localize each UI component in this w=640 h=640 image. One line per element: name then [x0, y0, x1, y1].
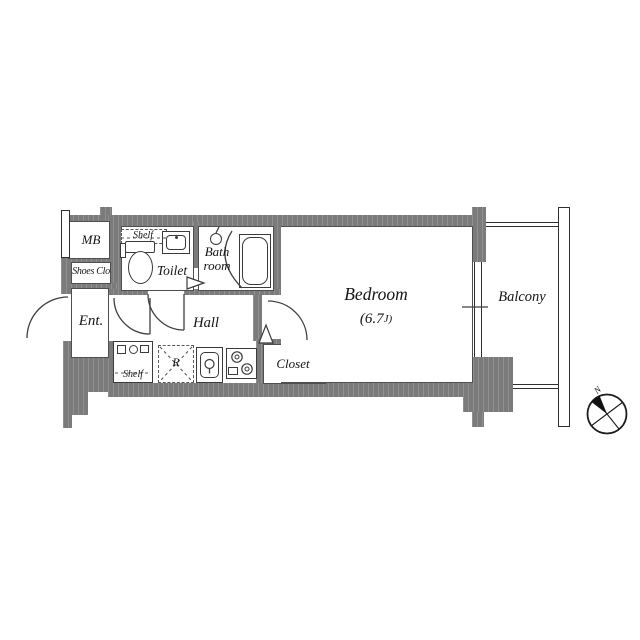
wall-hall-bedroom	[253, 295, 262, 341]
balcony-sliding-door	[474, 262, 482, 357]
balcony-railing-right	[558, 207, 570, 427]
bedroom-area-unit: J)	[384, 314, 393, 326]
entrance-door-arc	[27, 297, 68, 338]
wall-below-entrance-1	[63, 357, 113, 392]
label-bath-room: room	[196, 259, 238, 273]
label-bedroom-area: (6.7J)	[335, 311, 417, 329]
label-balcony: Balcony	[488, 289, 556, 306]
compass: N	[583, 378, 635, 436]
toilet-washbasin-drain	[175, 236, 178, 239]
stove-grill	[228, 367, 238, 375]
wall-top-pillar-right	[472, 207, 486, 262]
label-mb: MB	[66, 232, 116, 248]
label-toilet: Toilet	[150, 263, 194, 279]
label-shoes-clo: Shoes Clo	[69, 265, 113, 279]
label-bedroom: Bedroom	[330, 284, 422, 304]
wall-below-entrance-2	[63, 392, 88, 415]
label-entrance: Ent.	[68, 313, 114, 331]
hall-door-arc	[114, 298, 150, 334]
bedroom-area-main: (6.7	[360, 312, 384, 328]
balcony-edge-top	[486, 222, 560, 227]
label-closet: Closet	[262, 356, 324, 372]
label-shelf-laundry: Shelf	[113, 369, 153, 382]
label-shelf-toilet: Shelf	[123, 229, 163, 243]
balcony-edge-bottom	[513, 384, 558, 389]
laundry-tap-right	[140, 345, 149, 353]
wall-se-block-tab	[472, 412, 484, 427]
wall-bottom	[108, 383, 463, 397]
wall-below-entrance-3	[63, 415, 72, 428]
bathtub-inner	[242, 237, 268, 285]
laundry-tap-left	[117, 345, 126, 354]
floor-plan: MB Shoes Clo Ent. Shelf Toilet Bath room…	[0, 0, 640, 640]
kitchen-sink-basin	[200, 352, 219, 378]
laundry-drum	[129, 345, 138, 354]
toilet-door-arc	[148, 294, 184, 330]
label-bath: Bath	[196, 245, 238, 259]
label-hall: Hall	[184, 315, 228, 332]
wall-ent-right-top	[108, 289, 115, 295]
label-refrigerator: R	[161, 355, 191, 370]
